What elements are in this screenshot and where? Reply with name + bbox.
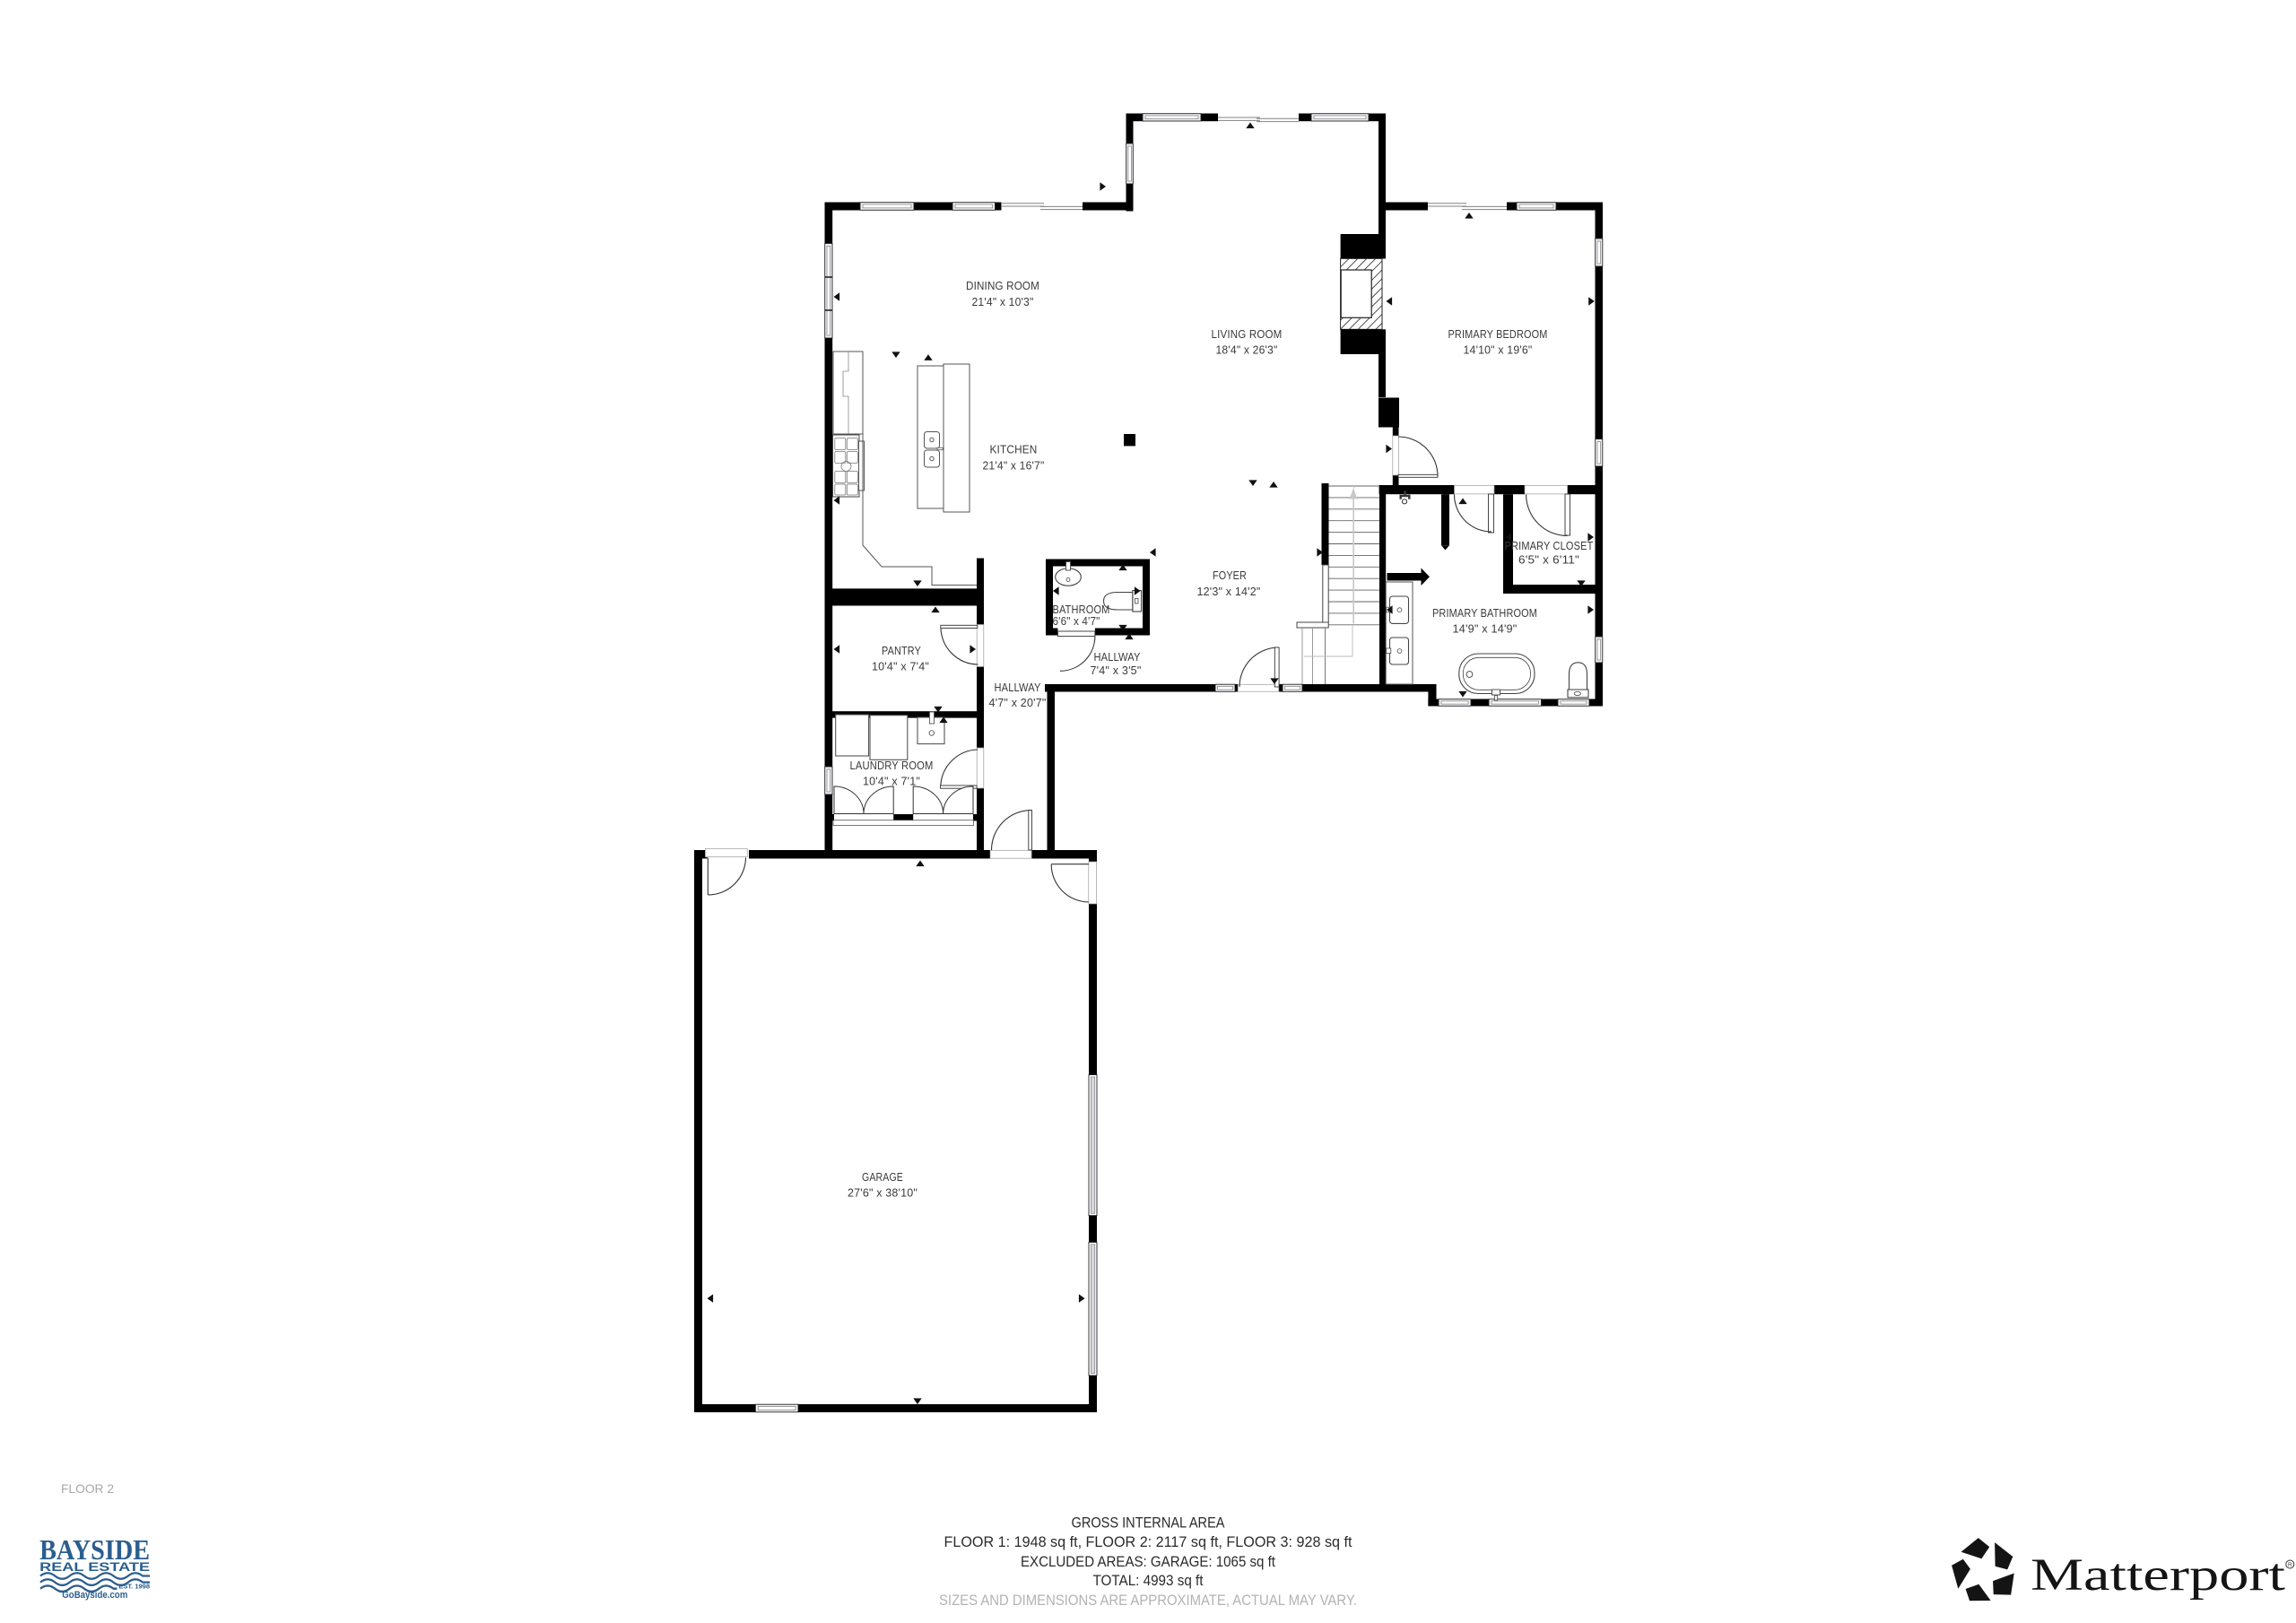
svg-text:10'4" x 7'4": 10'4" x 7'4" bbox=[872, 660, 929, 673]
svg-text:4'7" x 20'7": 4'7" x 20'7" bbox=[989, 696, 1047, 709]
svg-text:14'9" x 14'9": 14'9" x 14'9" bbox=[1453, 622, 1518, 636]
svg-text:PRIMARY BEDROOM: PRIMARY BEDROOM bbox=[1448, 327, 1548, 341]
svg-text:18'4" x 26'3": 18'4" x 26'3" bbox=[1216, 343, 1278, 357]
svg-text:PRIMARY CLOSET: PRIMARY CLOSET bbox=[1505, 539, 1594, 552]
svg-text:6'5" x 6'11": 6'5" x 6'11" bbox=[1518, 553, 1579, 567]
svg-text:GoBayside.com: GoBayside.com bbox=[62, 1590, 127, 1601]
svg-text:GROSS INTERNAL AREA: GROSS INTERNAL AREA bbox=[1072, 1515, 1225, 1531]
svg-text:KITCHEN: KITCHEN bbox=[990, 443, 1038, 456]
svg-text:FLOOR 1: 1948 sq ft, FLOOR 2:: FLOOR 1: 1948 sq ft, FLOOR 2: 2117 sq ft… bbox=[944, 1534, 1352, 1550]
svg-text:27'6" x 38'10": 27'6" x 38'10" bbox=[848, 1186, 918, 1200]
svg-text:HALLWAY: HALLWAY bbox=[995, 681, 1041, 694]
svg-text:21'4" x 16'7": 21'4" x 16'7" bbox=[983, 459, 1045, 473]
svg-text:PANTRY: PANTRY bbox=[882, 644, 921, 657]
svg-text:21'4" x 10'3": 21'4" x 10'3" bbox=[972, 295, 1034, 308]
svg-text:FOYER: FOYER bbox=[1213, 568, 1247, 582]
svg-text:FLOOR 2: FLOOR 2 bbox=[61, 1481, 114, 1496]
svg-text:GARAGE: GARAGE bbox=[862, 1170, 903, 1184]
svg-text:PRIMARY BATHROOM: PRIMARY BATHROOM bbox=[1432, 606, 1537, 620]
svg-text:12'3" x 14'2": 12'3" x 14'2" bbox=[1197, 585, 1261, 598]
svg-text:EXCLUDED AREAS: GARAGE: 1065 s: EXCLUDED AREAS: GARAGE: 1065 sq ft bbox=[1021, 1554, 1275, 1570]
svg-text:LAUNDRY ROOM: LAUNDRY ROOM bbox=[850, 759, 934, 772]
svg-text:7'4" x 3'5": 7'4" x 3'5" bbox=[1091, 664, 1142, 677]
svg-text:DINING ROOM: DINING ROOM bbox=[966, 279, 1039, 292]
svg-text:TOTAL: 4993 sq ft: TOTAL: 4993 sq ft bbox=[1093, 1573, 1204, 1589]
svg-text:10'4" x 7'1": 10'4" x 7'1" bbox=[863, 775, 920, 788]
svg-text:SIZES AND DIMENSIONS ARE APPRO: SIZES AND DIMENSIONS ARE APPROXIMATE, AC… bbox=[939, 1593, 1357, 1609]
svg-text:Matterport: Matterport bbox=[2031, 1550, 2285, 1601]
svg-text:REAL ESTATE: REAL ESTATE bbox=[39, 1560, 150, 1574]
svg-text:14'10" x 19'6": 14'10" x 19'6" bbox=[1464, 343, 1533, 357]
svg-text:6'6" x 4'7": 6'6" x 4'7" bbox=[1053, 614, 1100, 628]
svg-text:LIVING ROOM: LIVING ROOM bbox=[1212, 327, 1283, 341]
svg-text:HALLWAY: HALLWAY bbox=[1094, 650, 1141, 664]
svg-text:R: R bbox=[2288, 1562, 2292, 1568]
